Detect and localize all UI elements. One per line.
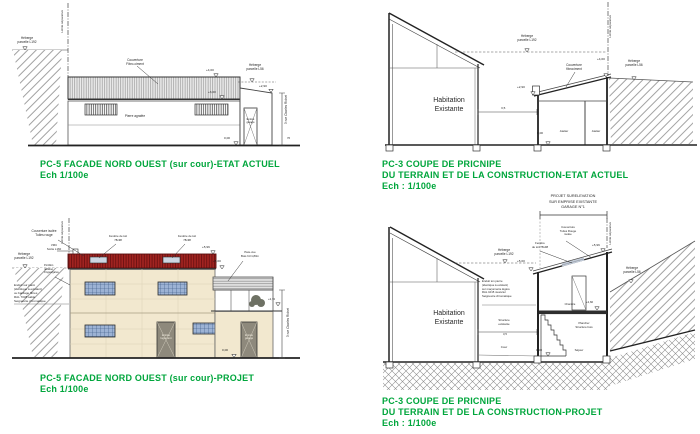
level-plus400: +4,00: [597, 57, 605, 61]
habitation-label: Habitation Existante: [418, 310, 480, 328]
heberge-left-label: Héberge parcelle L192: [488, 248, 520, 256]
level-plus260: +2,60: [586, 301, 593, 305]
panel4-scale: Ech : 1/100e: [382, 418, 436, 428]
panel2-scale: Ech : 1/100e: [382, 181, 436, 191]
structure-label: Structure existante: [490, 319, 518, 326]
metal-annotation: Portillon réutilisé zingué/galva: [44, 264, 68, 275]
level-plus596: +5,96: [592, 243, 600, 247]
plancher-label: Plancher Structure bois: [568, 322, 600, 329]
panel1-scale: Ech 1/100e: [40, 170, 89, 180]
drawing-sheet: Limite séparative Héberge parcelle L192 …: [0, 0, 700, 434]
dim-label: 76: [287, 137, 290, 141]
level-zero: 0,00: [537, 131, 543, 135]
panel2-title-line2: DU TERRAIN ET DE LA CONSTRUCTION-ETAT AC…: [382, 170, 628, 180]
level-plus596: +5,96: [202, 245, 210, 249]
enduit-annotation: Enduit sur paroi (identique à existant) …: [14, 283, 62, 303]
level-plus500: +5,00: [517, 259, 525, 263]
roof-material-label: Couverture Fibro-ciment: [120, 58, 150, 66]
heberge-mid-label: Héberge parcelle L192: [512, 34, 542, 42]
level-plus500: +5,00: [213, 259, 221, 263]
door-garage-label: Entrée garage: [241, 334, 257, 341]
panel3-scale: Ech 1/100e: [40, 384, 89, 394]
roof-window2-label: Fenêtre de toit 78x98: [171, 235, 203, 242]
limite-separative-label: Limite séparative: [609, 222, 613, 245]
garage-door-label: Entrée garage: [244, 118, 257, 125]
cour-label: Cour: [494, 346, 514, 350]
roof-window1-label: Fenêtre de toit 78x98: [102, 235, 134, 242]
room-label-atelier2: Atelier: [584, 130, 608, 134]
street-label: 3 rue Charles Richet: [286, 308, 290, 337]
limite-separative-label: Limite séparative: [61, 221, 65, 244]
dim-35: 3,5: [501, 106, 505, 110]
dim-35: 3,5: [503, 333, 507, 337]
limite-separative-label: Limite séparative: [609, 15, 613, 38]
heberge-left-label: Héberge parcelle L192: [14, 36, 40, 44]
heberge-left-label: Héberge parcelle L192: [10, 252, 38, 260]
parevue-label: Pare-vue Bois ht=1,80m: [232, 251, 268, 258]
level-zero: 0,00: [536, 348, 542, 352]
vmc-label: VMC Sortie L160: [42, 244, 66, 251]
roof-material-label: Couverture Tuiles Rouge isolée: [552, 226, 584, 237]
habitation-label: Habitation Existante: [418, 97, 480, 115]
panel4-title-line2: DU TERRAIN ET DE LA CONSTRUCTION-PROJET: [382, 407, 602, 417]
roof-material-label: Couverture fibrociment: [560, 63, 588, 71]
level-zero: 0,00: [224, 136, 230, 140]
level-zero: 0,00: [222, 348, 228, 352]
level-plus300: +3,00: [208, 90, 216, 94]
heberge-right-label: Héberge parcelle L56: [240, 63, 270, 71]
panel2-title-line1: PC-3 COUPE DE PRICNIPE: [382, 159, 501, 169]
drawing-geometry: [0, 0, 700, 434]
surelevation-header: PROJET SURELEVATION SUR EMPRISE EXISTANT…: [520, 194, 626, 211]
chambre-label: Chambre: [560, 303, 580, 306]
wall-material-label: Pierre agrafée: [110, 114, 160, 118]
level-plus400: +4,00: [206, 68, 214, 72]
roof-window-label: Fenêtre de toit 78x98: [526, 242, 554, 249]
street-label: 3 rue Charles Richet: [284, 95, 288, 124]
heberge-right-label: Héberge parcelle L56: [617, 266, 647, 274]
room-label-atelier1: Atelier: [552, 130, 576, 134]
door-logement-label: Entrée logement: [157, 334, 175, 341]
level-plus272: +2,72: [268, 298, 275, 302]
limite-separative-label: Limite séparative: [61, 10, 65, 33]
roof-material-label: Couverture isolée Tuiles rouge: [26, 229, 62, 237]
panel1-title: PC-5 FACADE NORD OUEST (sur cour)-ETAT A…: [40, 159, 280, 169]
panel4-title-line1: PC-3 COUPE DE PRICNIPE: [382, 396, 501, 406]
panel3-title: PC-5 FACADE NORD OUEST (sur cour)-PROJET: [40, 373, 254, 383]
level-plus290: +2,90: [517, 85, 525, 89]
sejour-label: Séjour: [568, 349, 590, 353]
enduit-annotation: Enduit ton pierre (identique à existant)…: [482, 280, 532, 299]
heberge-right-label: Héberge parcelle L56: [619, 59, 649, 67]
level-plus290: +2,90: [259, 84, 267, 88]
